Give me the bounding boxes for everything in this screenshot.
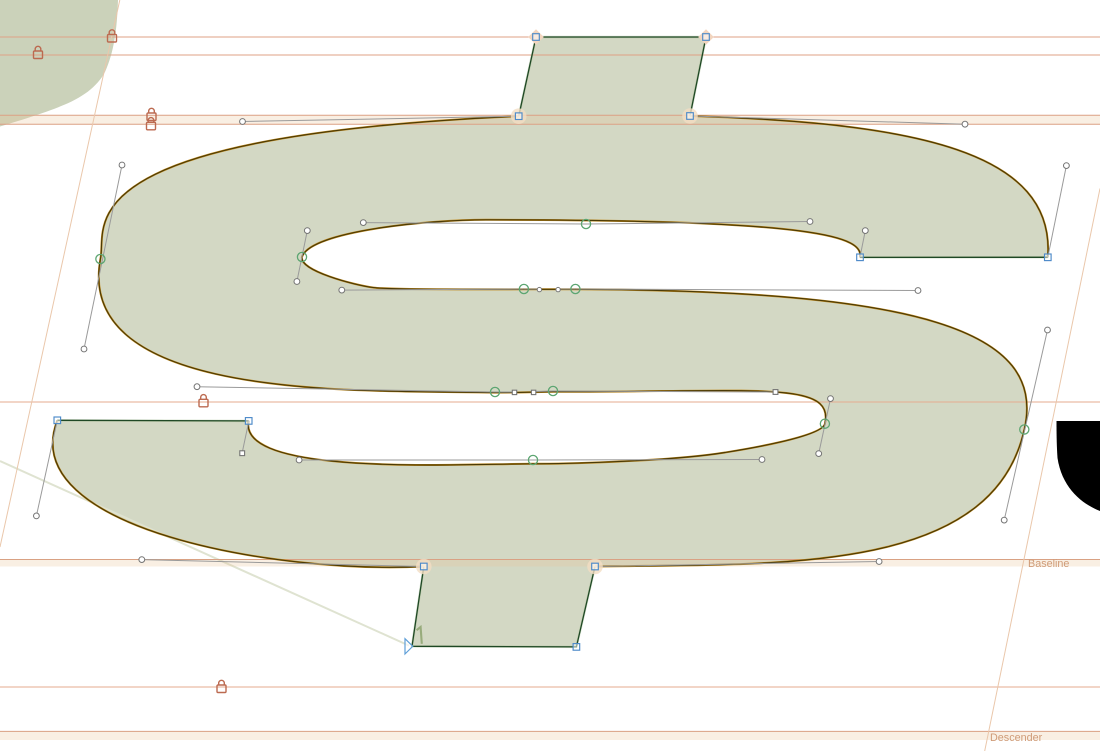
svg-text:Descender: Descender — [990, 732, 1043, 744]
svg-text:Baseline: Baseline — [1028, 558, 1069, 570]
